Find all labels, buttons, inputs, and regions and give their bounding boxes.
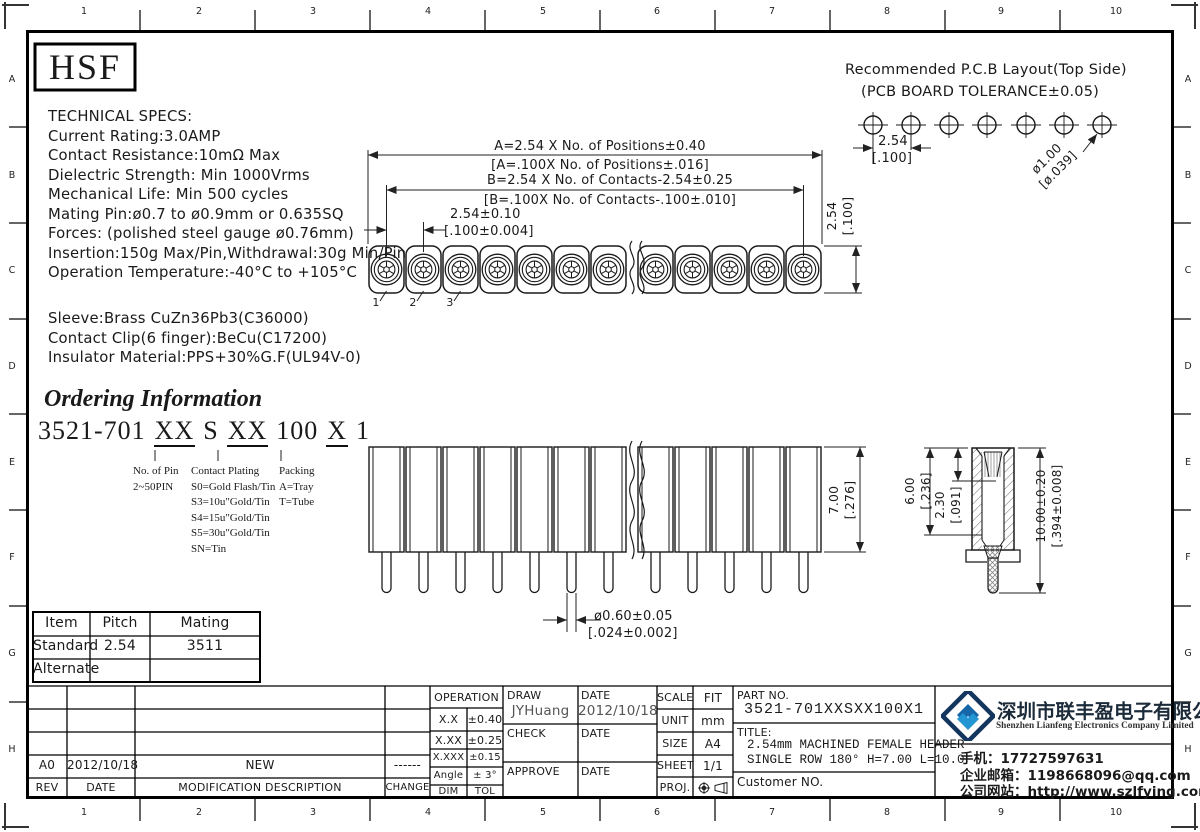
pcb-tolerance-note: (PCB BOARD TOLERANCE±0.05) [845, 84, 1115, 100]
spec-line: Dielectric Strength: Min 1000Vrms [48, 166, 406, 186]
mating-col-header: Pitch [90, 615, 150, 631]
tolerance-dim: Angle [430, 770, 467, 781]
tolerance-tol: ±0.15 [467, 752, 503, 763]
spec-line: Insulator Material:PPS+30%G.F(UL94V-0) [48, 348, 361, 368]
sheet-label: SHEET [657, 759, 693, 772]
mating-cell: 2.54 [90, 638, 150, 654]
approve-date-label: DATE [581, 765, 610, 778]
company-name-cn: 深圳市联丰盈电子有限公司 [997, 695, 1200, 724]
part-title-line2: SINGLE ROW 180° H=7.00 L=10.0 [747, 753, 965, 767]
grid-col-label: 1 [64, 6, 104, 17]
grid-col-label: 8 [867, 807, 907, 818]
dim-inner-depth-mm: 6.00 [902, 477, 918, 505]
grid-col-label: 9 [981, 807, 1021, 818]
grid-row-label: G [1179, 643, 1197, 663]
tolerance-tol-header: TOL [467, 786, 503, 797]
approve-label: APPROVE [507, 765, 560, 778]
grid-col-label: 7 [752, 6, 792, 17]
dim-total-length-mm: 10.00±0.20 [1033, 469, 1049, 542]
grid-row-label: E [1179, 452, 1197, 472]
materials-block: Sleeve:Brass CuZn36Pb3(C36000) Contact C… [48, 309, 361, 368]
dim-row-width-mm: 2.54 [824, 202, 840, 231]
revision-header-change: CHANGE [385, 782, 430, 793]
pcb-pitch-dim-in: [.100] [867, 151, 917, 166]
dim-a-in: [A=.100X No. of Positions±.016] [430, 158, 770, 173]
dim-entry-depth: 2.30 [.091] [932, 473, 964, 537]
tolerance-tol: ±0.25 [467, 734, 503, 747]
pin-number-label: 2 [406, 296, 420, 309]
dim-pitch-in: [.100±0.004] [444, 224, 534, 239]
spec-line: TECHNICAL SPECS: [48, 107, 406, 127]
spec-line: Current Rating:3.0AMP [48, 127, 406, 147]
plating-option: S5=30u"Gold/Tin [191, 526, 275, 542]
pin-number-label: 3 [443, 296, 457, 309]
grid-row-label: D [3, 356, 21, 376]
code-base: 3521-701 [38, 416, 146, 445]
revision-change: ------ [385, 758, 430, 772]
code-pin-count: XX [154, 416, 196, 447]
revision-header-rev: REV [27, 781, 67, 794]
plating-header: Contact Plating [191, 464, 275, 480]
ordering-plating-column: Contact Plating S0=Gold Flash/Tin S3=10u… [191, 464, 275, 557]
drawing-sheet: 1 2 3 4 5 6 7 8 9 10 1 2 3 4 5 6 7 8 9 1… [0, 0, 1200, 832]
grid-col-label: 6 [637, 6, 677, 17]
tolerance-tol: ± 3° [467, 770, 503, 781]
dim-body-height-in: [.276] [842, 481, 858, 520]
ordering-packing-column: Packing A=Tray T=Tube [279, 464, 314, 511]
grid-col-label: 9 [981, 6, 1021, 17]
grid-row-label: G [3, 643, 21, 663]
scale-value: FIT [693, 691, 733, 705]
grid-col-label: 2 [179, 6, 219, 17]
dim-entry-depth-mm: 2.30 [932, 491, 948, 519]
code-packing: X [326, 416, 348, 447]
plating-option: S3=10u"Gold/Tin [191, 495, 275, 511]
draw-date-value: 2012/10/18 [578, 703, 657, 719]
draw-date-label: DATE [581, 689, 610, 702]
revision-header-desc: MODIFICATION DESCRIPTION [135, 781, 385, 794]
grid-col-label: 1 [64, 807, 104, 818]
grid-row-label: E [3, 452, 21, 472]
plating-option: S4=15u"Gold/Tin [191, 511, 275, 527]
packing-option: T=Tube [279, 495, 314, 511]
code-height: 100 [276, 416, 318, 445]
part-title-line1: 2.54mm MACHINED FEMALE HEADER [747, 738, 965, 752]
draw-name: JYHuang [503, 703, 578, 719]
side-section-view [966, 448, 1020, 593]
grid-row-label: B [3, 165, 21, 185]
grid-row-label: A [1179, 69, 1197, 89]
company-name-en: Shenzhen Lianfeng Electronics Company Li… [996, 721, 1194, 731]
grid-col-label: 4 [408, 807, 448, 818]
grid-col-label: 6 [637, 807, 677, 818]
spec-line: Mechanical Life: Min 500 cycles [48, 185, 406, 205]
grid-col-label: 10 [1096, 807, 1136, 818]
packing-option: A=Tray [279, 480, 314, 496]
grid-row-label: C [3, 260, 21, 280]
grid-col-label: 8 [867, 6, 907, 17]
technical-specs-block: TECHNICAL SPECS: Current Rating:3.0AMP C… [48, 107, 406, 283]
tolerance-tol: ±0.40 [467, 713, 503, 726]
front-view-drawing [369, 441, 821, 593]
mating-cell: Alternate [33, 661, 90, 677]
hsf-logo-text: HSF [35, 44, 135, 90]
grid-col-label: 3 [293, 6, 333, 17]
code-suffix: 1 [356, 416, 370, 445]
revision-date: 2012/10/18 [67, 758, 135, 772]
grid-row-label: D [1179, 356, 1197, 376]
plating-option: S0=Gold Flash/Tin [191, 480, 275, 496]
dim-pin-dia-mm: ø0.60±0.05 [594, 609, 673, 624]
grid-col-label: 5 [523, 807, 563, 818]
grid-row-label: H [3, 739, 21, 759]
pin-count-range: 2~50PIN [133, 480, 179, 496]
dim-inner-depth: 6.00 [.236] [902, 459, 934, 523]
ordering-code: 3521-701XXSXX100X1 [38, 416, 378, 446]
customer-no-label: Customer NO. [737, 775, 823, 789]
dim-b-in: [B=.100X No. of Contacts-.100±.010] [440, 193, 780, 208]
grid-col-label: 5 [523, 6, 563, 17]
grid-col-label: 7 [752, 807, 792, 818]
grid-row-label: F [1179, 547, 1197, 567]
ordering-pin-column: No. of Pin 2~50PIN [133, 464, 179, 495]
grid-row-label: C [1179, 260, 1197, 280]
ordering-leader-lines [155, 450, 281, 461]
dim-pitch-mm: 2.54±0.10 [450, 207, 521, 222]
packing-header: Packing [279, 464, 314, 480]
spec-line: Mating Pin:ø0.7 to ø0.9mm or 0.635SQ [48, 205, 406, 225]
grid-col-label: 3 [293, 807, 333, 818]
tolerance-dim: X.XX [430, 734, 467, 747]
check-date-label: DATE [581, 727, 610, 740]
grid-row-label: F [3, 547, 21, 567]
dim-body-height: 7.00 [.276] [826, 468, 862, 532]
pin-number-label: 1 [369, 296, 383, 309]
grid-row-label: A [3, 69, 21, 89]
spec-line: Operation Temperature:-40°C to +105°C [48, 263, 406, 283]
scale-label: SCALE [657, 691, 693, 704]
part-no-value: 3521-701XXSXX100X1 [733, 701, 935, 718]
grid-col-label: 10 [1096, 6, 1136, 17]
pcb-pitch-dim-mm: 2.54 [874, 134, 912, 149]
grid-col-label: 4 [408, 6, 448, 17]
dim-total-length-in: [.394±0.008] [1049, 465, 1065, 548]
code-plating: XX [227, 416, 269, 447]
unit-value: mm [693, 714, 733, 728]
grid-col-label: 2 [179, 807, 219, 818]
mating-col-header: Item [33, 615, 90, 631]
code-series: S [203, 416, 218, 445]
check-label: CHECK [507, 727, 546, 740]
dim-b-mm: B=2.54 X No. of Contacts-2.54±0.25 [440, 173, 780, 188]
mating-cell: Standard [33, 638, 90, 654]
spec-line: Forces: (polished steel gauge ø0.76mm) [48, 224, 406, 244]
dim-row-width: 2.54 [.100] [824, 186, 860, 246]
sheet-value: 1/1 [693, 759, 733, 773]
tolerance-dim: X.XXX [430, 752, 467, 763]
size-label: SIZE [657, 737, 693, 750]
dim-a-mm: A=2.54 X No. of Positions±0.40 [430, 139, 770, 154]
revision-rev: A0 [27, 758, 67, 772]
ordering-title: Ordering Information [44, 386, 262, 413]
projection-symbol-icon [697, 781, 729, 795]
spec-line: Contact Resistance:10mΩ Max [48, 146, 406, 166]
grid-row-label: B [1179, 165, 1197, 185]
company-website: 公司网站：http://www.szlfying.com [960, 780, 1200, 800]
revision-header-date: DATE [67, 781, 135, 794]
pcb-layout-title: Recommended P.C.B Layout(Top Side) [845, 62, 1115, 78]
revision-desc: NEW [135, 758, 385, 772]
tolerance-dim: X.X [430, 713, 467, 726]
spec-line: Insertion:150g Max/Pin,Withdrawal:30g Mi… [48, 244, 406, 264]
size-value: A4 [693, 737, 733, 751]
grid-row-label: H [1179, 739, 1197, 759]
mating-col-header: Mating [150, 615, 260, 631]
tolerance-dim-header: DIM [430, 786, 467, 797]
company-logo-icon [941, 691, 995, 741]
projection-label: PROJ. [657, 781, 693, 794]
top-view-drawing [369, 241, 821, 301]
mating-cell: 3511 [150, 638, 260, 654]
dim-row-width-in: [.100] [840, 197, 856, 236]
dim-body-height-mm: 7.00 [826, 486, 842, 515]
plating-option: SN=Tin [191, 542, 275, 558]
tolerance-header: OPERATION [430, 691, 503, 704]
draw-label: DRAW [507, 689, 541, 702]
unit-label: UNIT [657, 714, 693, 727]
dim-entry-depth-in: [.091] [948, 486, 964, 523]
spec-line: Contact Clip(6 finger):BeCu(C17200) [48, 329, 361, 349]
dim-total-length: 10.00±0.20 [.394±0.008] [1033, 441, 1069, 571]
dim-pin-dia-in: [.024±0.002] [588, 626, 678, 641]
pin-count-header: No. of Pin [133, 464, 179, 480]
spec-line: Sleeve:Brass CuZn36Pb3(C36000) [48, 309, 361, 329]
